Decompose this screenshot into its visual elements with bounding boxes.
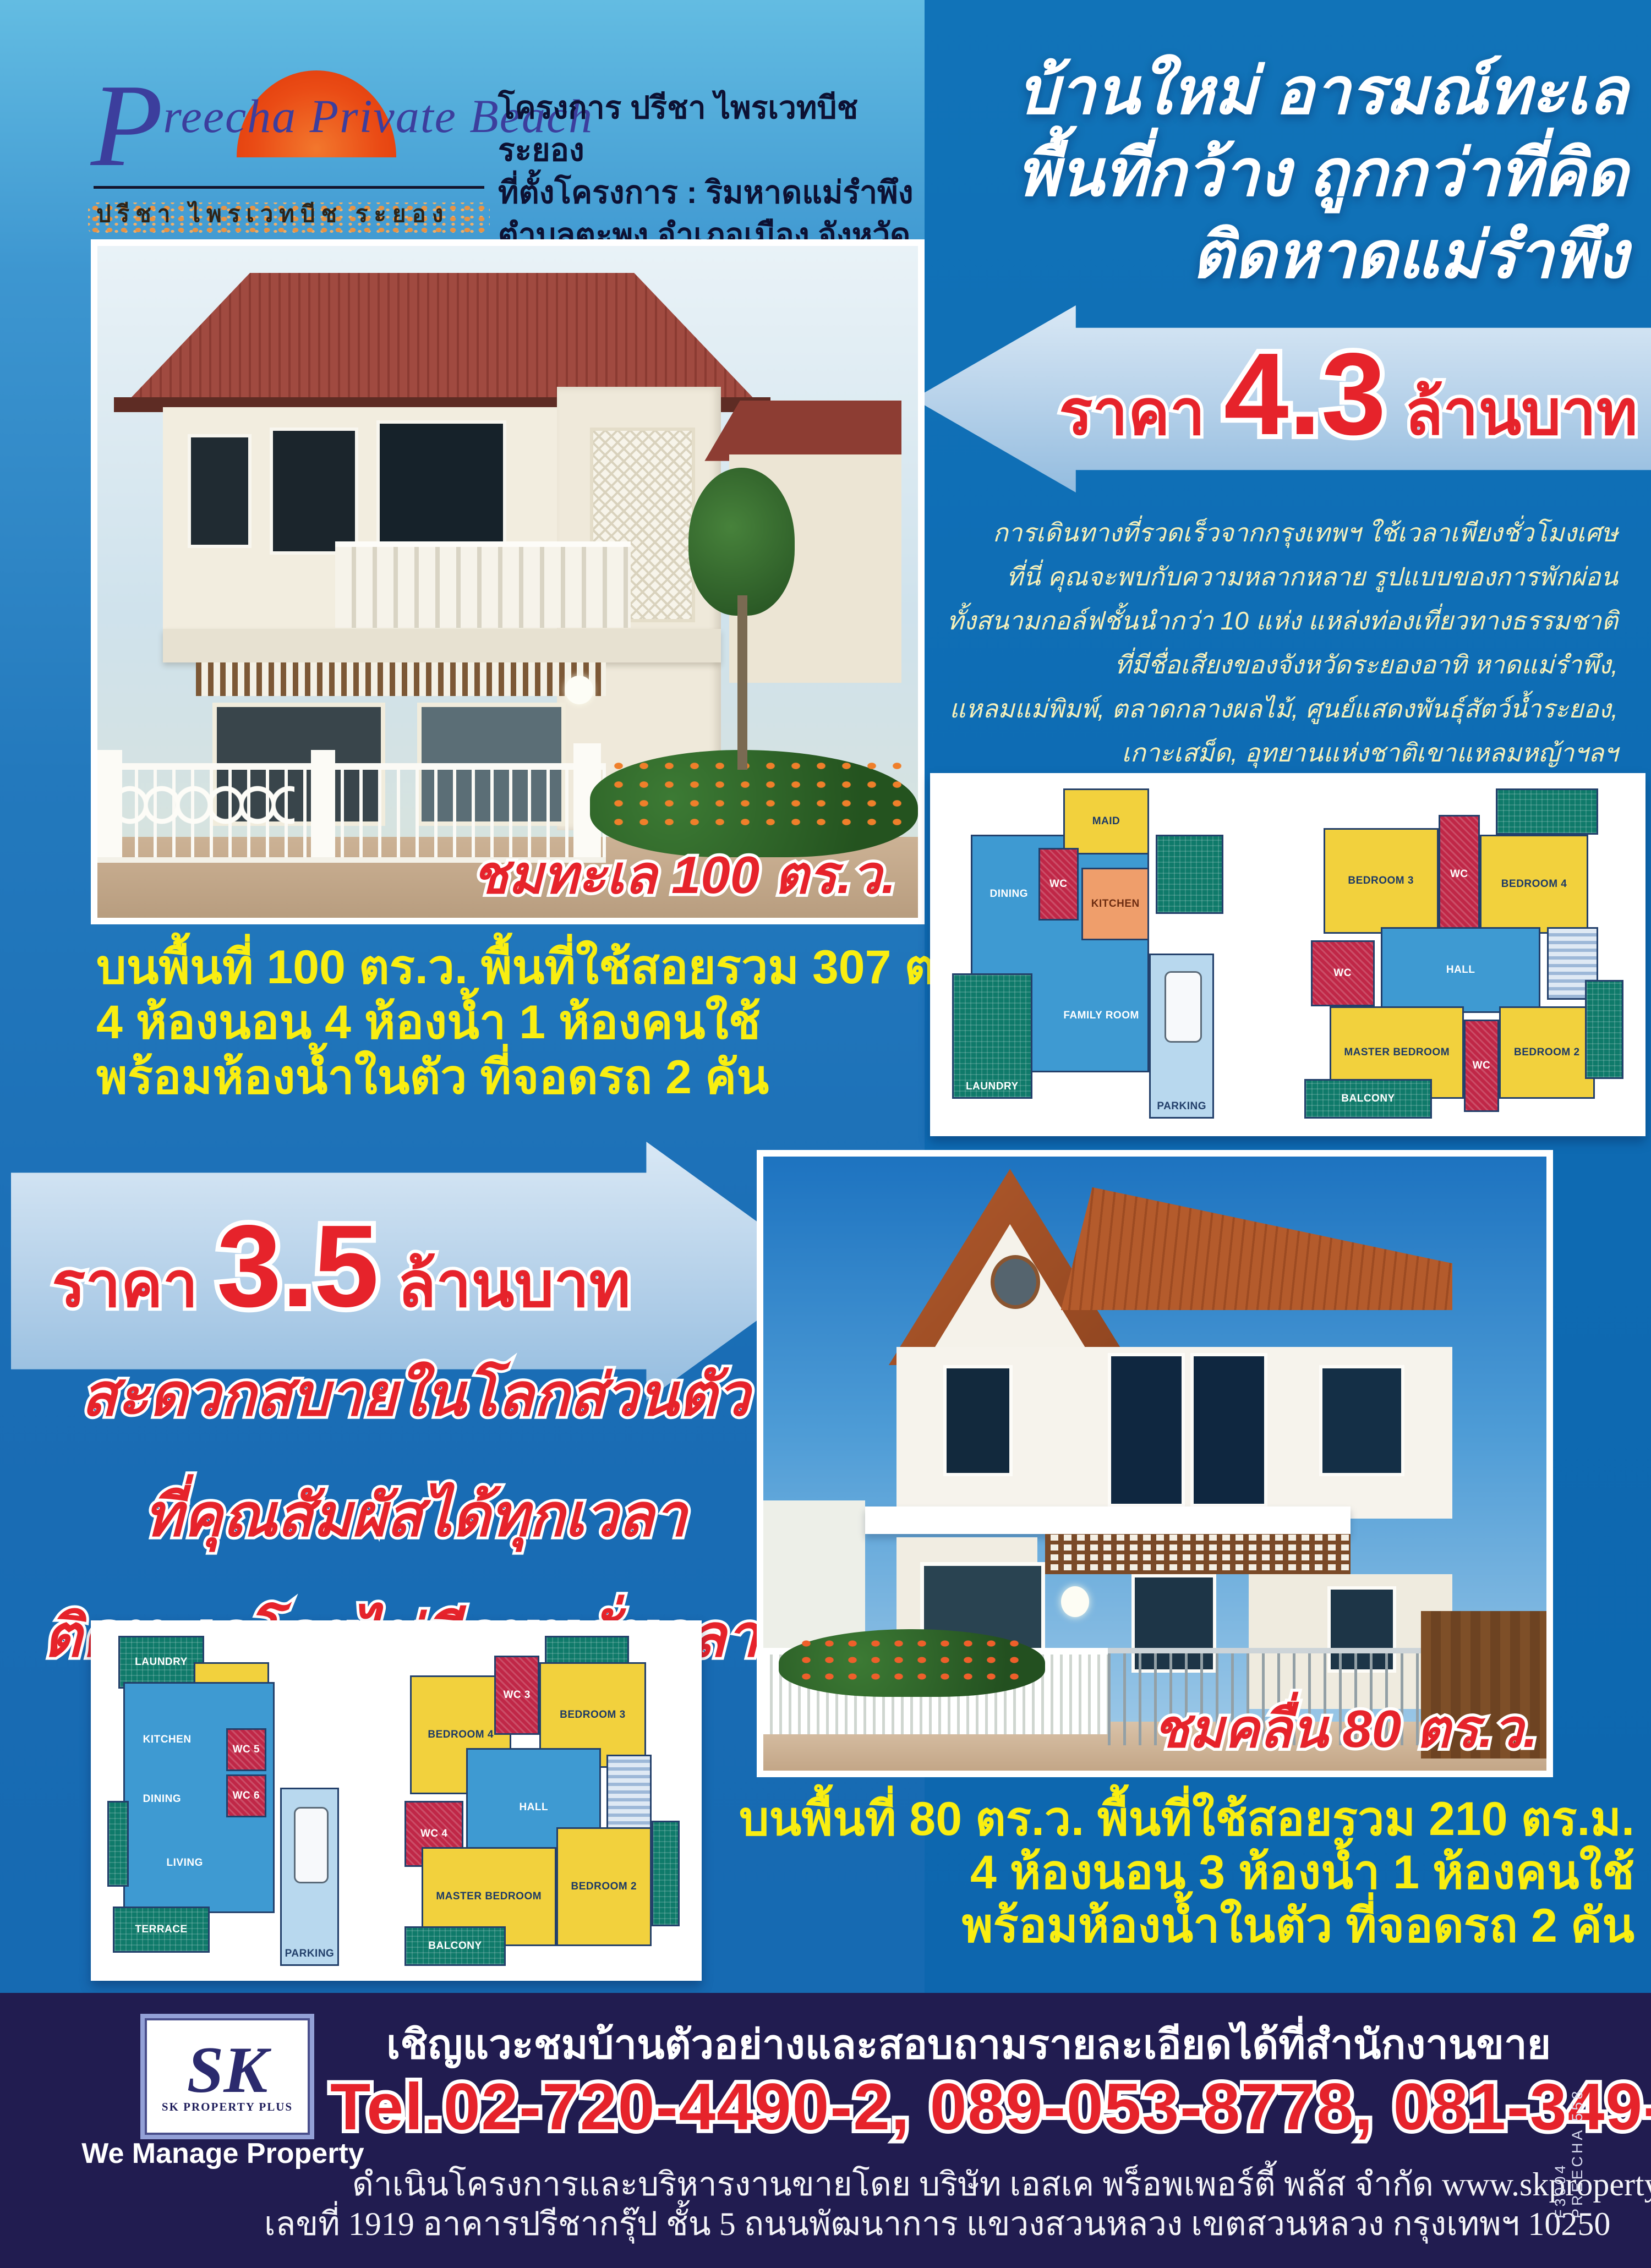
window-icon (188, 434, 252, 548)
footer: SK SK PROPERTY PLUS We Manage Property เ… (0, 1993, 1651, 2268)
room-maid: MAID (1063, 788, 1150, 854)
price2-label: ราคา (52, 1235, 198, 1334)
project-info-line: ที่ตั้งโครงการ : ริมหาดแม่รำพึง (498, 172, 927, 214)
photo1-caption-text: ชมทะเล 100 ตร.ว. (472, 833, 896, 917)
car-icon (294, 1807, 329, 1884)
window-icon (1108, 1353, 1185, 1507)
intro-line: ที่มีชื่อเสียงของจังหวัดระยองอาทิ หาดแม่… (925, 643, 1618, 687)
room-label: DINING (143, 1793, 182, 1805)
phone-numbers: Tel.02-720-4490-2, 089-053-8778, 081-349… (330, 2069, 1596, 2145)
phone-text: Tel.02-720-4490-2, 089-053-8778, 081-349… (330, 2069, 1651, 2145)
spec-line: 4 ห้องนอน 3 ห้องน้ำ 1 ห้องคนใช้ (721, 1846, 1634, 1899)
house1-specs: บนพื้นที่ 100 ตร.ว. พื้นที่ใช้สอยรวม 307… (96, 940, 1018, 1105)
window-icon (1190, 1353, 1267, 1507)
logo-thai-name: ปรีชา ไพรเวทบีช ระยอง (96, 196, 487, 232)
intro-line: ทั้งสนามกอล์ฟชั้นนำกว่า 10 แห่ง แหล่งท่อ… (925, 599, 1618, 643)
price1-label: ราคา (1059, 363, 1205, 462)
photo2-caption-text: ชมคลื่น 80 ตร.ว. (1153, 1687, 1538, 1771)
headline-line: ติดหาดแม่รำพึง (940, 215, 1628, 297)
room-side-strip (107, 1801, 129, 1887)
lattice-transom (196, 662, 606, 696)
room-laundry: LAUNDRY (118, 1636, 205, 1689)
benefit-text: ที่คุณสัมผัสได้ทุกเวลา (144, 1464, 687, 1567)
intro-paragraph: การเดินทางที่รวดเร็วจากกรุงเทพฯ ใช้เวลาเ… (925, 511, 1618, 775)
room-label: KITCHEN (143, 1734, 192, 1746)
intro-line: การเดินทางที่รวดเร็วจากกรุงเทพฯ ใช้เวลาเ… (925, 511, 1618, 555)
intro-line: เกาะเสม็ด, อุทยานแห่งชาติเขาแหลมหญ้าฯลฯ (925, 731, 1618, 775)
price1-unit: ล้านบาท (1404, 363, 1637, 462)
spec-line: พร้อมห้องน้ำในตัว ที่จอดรถ 2 คัน (721, 1899, 1634, 1953)
lattice-rail (1045, 1534, 1351, 1574)
headline-line: บ้านใหม่ อารมณ์ทะเล (940, 51, 1628, 133)
room-parking: PARKING (1149, 954, 1214, 1119)
benefit-line: สะดวกสบายในโลกส่วนตัว (22, 1344, 809, 1464)
headline-line: พื้นที่กว้าง ถูกกว่าที่คิด (940, 133, 1628, 215)
main-headline: บ้านใหม่ อารมณ์ทะเล พื้นที่กว้าง ถูกกว่า… (940, 51, 1628, 297)
room-bedroom3: BEDROOM 3 (1324, 828, 1439, 934)
lamp-icon (1061, 1586, 1089, 1617)
logo-underline (94, 186, 484, 189)
room-hall: HALL (1381, 927, 1540, 1013)
intro-line: แหลมแม่พิมพ์, ตลาดกลางผลไม้, ศูนย์แสดงพั… (925, 687, 1618, 731)
lamp-icon (565, 676, 593, 704)
stairs-icon (606, 1755, 652, 1834)
sk-monogram: SK (187, 2040, 268, 2100)
floorplan-panel-1: DINING LIVING FAMILY ROOM LAUNDRY MAID W… (930, 773, 1645, 1136)
room-label: LIVING (167, 1857, 203, 1869)
floorplan1-upper: BEDROOM 3 WC BEDROOM 4 WC HALL MASTER BE… (1304, 788, 1623, 1119)
spec-line: พร้อมห้องน้ำในตัว ที่จอดรถ 2 คัน (96, 1050, 1018, 1105)
window-icon (376, 420, 506, 561)
fence-ring-panel (114, 773, 294, 837)
car-icon (1165, 971, 1202, 1042)
floorplan2-ground: LAUNDRY MAID KITCHEN DINING LIVING WC 5 … (107, 1636, 377, 1966)
room-terrace-patch (1156, 835, 1223, 914)
gable-vent (991, 1255, 1041, 1310)
price1-value: 4.3 (1224, 336, 1386, 452)
room-bedroom4: BEDROOM 4 (1480, 835, 1588, 934)
window-icon (1319, 1365, 1404, 1476)
room-balcony-strip (1585, 980, 1623, 1079)
address-line: เลขที่ 1919 อาคารปรีชากรุ๊ป ชั้น 5 ถนนพั… (264, 2198, 1442, 2250)
tree-trunk (737, 595, 747, 770)
room-balcony: BALCONY (1304, 1079, 1432, 1119)
room-wc: WC (1311, 940, 1375, 1006)
room-roof-deck (1496, 788, 1598, 835)
price-line: ราคา 4.3 ล้านบาท (1059, 336, 1638, 462)
photo2-caption: ชมคลื่น 80 ตร.ว. (1153, 1687, 1538, 1771)
house-photo-2: ชมคลื่น 80 ตร.ว. (757, 1150, 1553, 1777)
intro-line: ที่นี่ คุณจะพบกับความหลากหลาย รูปแบบของก… (925, 555, 1618, 599)
room-balcony: BALCONY (404, 1926, 506, 1966)
spec-line: 4 ห้องนอน 4 ห้องน้ำ 1 ห้องคนใช้ (96, 995, 1018, 1050)
room-balcony-strip (652, 1821, 680, 1926)
spec-line: บนพื้นที่ 80 ตร.ว. พื้นที่ใช้สอยรวม 210 … (721, 1793, 1634, 1846)
footer-headline: เชิญแวะชมบ้านตัวอย่างและสอบถามรายละเอียด… (363, 2012, 1574, 2077)
room-label: DINING (989, 888, 1028, 900)
window-icon (943, 1365, 1013, 1476)
room-bedroom2: BEDROOM 2 (556, 1827, 652, 1946)
main-roof (1061, 1187, 1453, 1310)
balcony-slab (865, 1506, 1351, 1534)
logo-letter-p: P (91, 59, 163, 191)
room-wc3: WC 3 (494, 1656, 539, 1735)
benefit-text: สะดวกสบายในโลกส่วนตัว (81, 1344, 750, 1447)
floorplan1-ground: DINING LIVING FAMILY ROOM LAUNDRY MAID W… (952, 788, 1260, 1119)
sk-logo: SK SK PROPERTY PLUS (140, 2014, 314, 2139)
room-bedroom2: BEDROOM 2 (1499, 1006, 1595, 1099)
house-photo-1: ชมทะเล 100 ตร.ว. (91, 239, 925, 924)
house2-specs: บนพื้นที่ 80 ตร.ว. พื้นที่ใช้สอยรวม 210 … (721, 1793, 1634, 1953)
room-wc: WC (1464, 1020, 1499, 1112)
price-line: ราคา 3.5 ล้านบาท (52, 1208, 631, 1334)
benefit-line: ที่คุณสัมผัสได้ทุกเวลา (22, 1464, 809, 1585)
fence-post (311, 750, 336, 857)
sk-logo-label: SK PROPERTY PLUS (162, 2100, 293, 2114)
room-kitchen: KITCHEN (1081, 868, 1149, 940)
tree (688, 468, 795, 616)
floor-band (163, 629, 721, 662)
balcony-rail (335, 541, 631, 628)
room-wc: WC (1439, 815, 1480, 934)
fence-post (97, 750, 122, 857)
photo1-caption: ชมทะเล 100 ตร.ว. (472, 833, 896, 917)
project-info-line: โครงการ ปรีชา ไพรเวทบีช ระยอง (498, 87, 927, 172)
room-laundry: LAUNDRY (952, 973, 1032, 1099)
room-wc5: WC 5 (226, 1728, 267, 1771)
price2-value: 3.5 (217, 1208, 379, 1324)
floorplan-panel-2: LAUNDRY MAID KITCHEN DINING LIVING WC 5 … (91, 1620, 702, 1981)
room-wc: WC (1038, 848, 1079, 921)
bush-flowers (606, 757, 901, 837)
bush-flowers (795, 1635, 1030, 1684)
spec-line: บนพื้นที่ 100 ตร.ว. พื้นที่ใช้สอยรวม 307… (96, 940, 1018, 995)
room-wc6: WC 6 (226, 1774, 267, 1817)
room-parking: PARKING (280, 1788, 340, 1966)
window-icon (270, 428, 358, 555)
room-label: FAMILY ROOM (1063, 1010, 1139, 1022)
floorplan2-upper: BEDROOM 4 WC 3 BEDROOM 3 WC 4 HALL MASTE… (399, 1636, 680, 1966)
price2-unit: ล้านบาท (397, 1235, 630, 1334)
print-code: F3004 PREECHA 558 (1552, 2075, 1586, 2218)
flyer-page: Preecha Private Beach ปรีชา ไพรเวทบีช ระ… (0, 0, 1651, 2268)
room-terrace: TERRACE (113, 1907, 210, 1953)
